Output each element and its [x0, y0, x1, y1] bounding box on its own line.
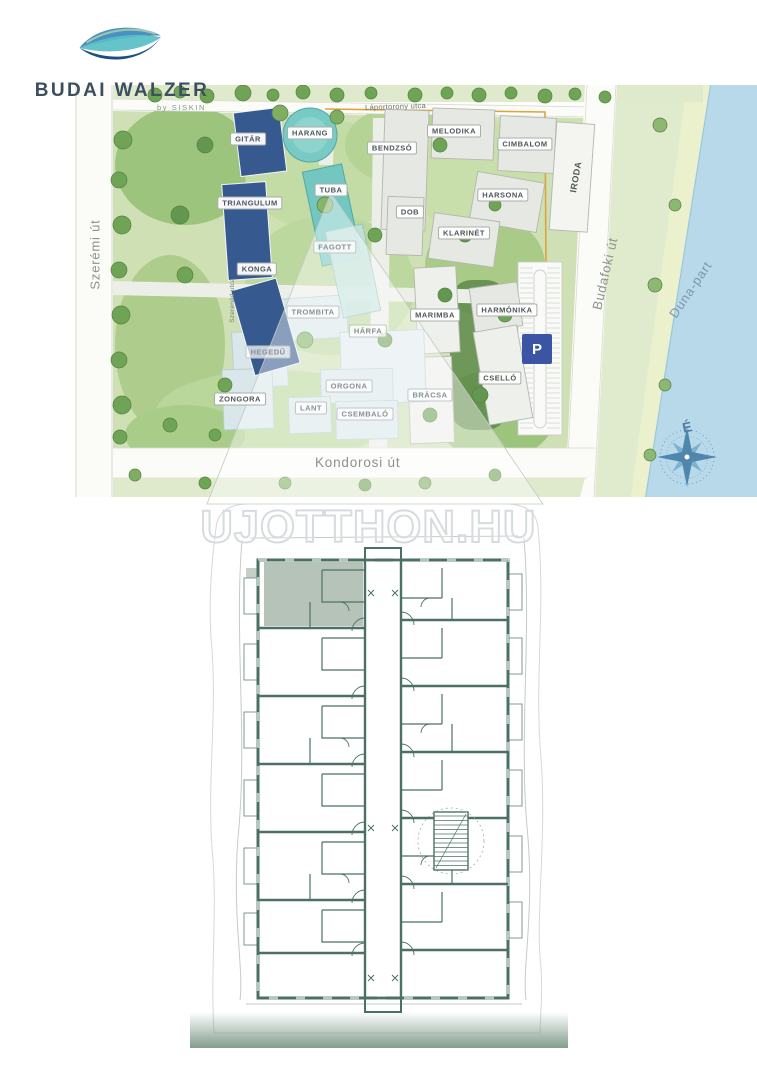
building-label-harmonika: HARMÓNIKA: [476, 304, 537, 317]
building-label-hegedu: HEGEDŰ: [245, 346, 290, 359]
street-label-szeremi-ut: Szerémi út: [88, 219, 103, 289]
parking-badge: P: [522, 334, 552, 364]
building-label-bracsa: BRÁCSA: [407, 389, 452, 402]
card-bottom-shadow: [190, 1012, 568, 1048]
floor-plan: [190, 498, 568, 1048]
building-label-dob: DOB: [396, 206, 424, 219]
building-label-tuba: TUBA: [315, 184, 348, 197]
building-label-harang: HARANG: [287, 127, 333, 140]
brand-logo-mark: [62, 16, 182, 78]
building-label-klarinet: KLARINÉT: [438, 227, 490, 240]
building-label-bendzso: BENDZSÓ: [367, 142, 417, 155]
street-label-kondorosi-ut: Kondorosi út: [315, 455, 400, 470]
brand-byline: by SISKIN: [34, 103, 210, 112]
brand-title: BUDAI WALZER: [34, 80, 210, 102]
page: BUDAI WALZER by SISKIN: [0, 0, 757, 1080]
building-label-harsona: HARSONA: [477, 189, 528, 202]
building-label-csembalo: CSEMBALÓ: [337, 408, 394, 421]
building-label-trombita: TROMBITA: [286, 306, 339, 319]
building-label-lant: LANT: [295, 402, 327, 415]
building-label-zongora: ZONGORA: [214, 393, 266, 406]
building-label-gitar: GITÁR: [230, 133, 266, 146]
building-label-melodika: MELODIKA: [427, 125, 481, 138]
brand-block: BUDAI WALZER by SISKIN: [34, 16, 210, 112]
building-label-csello: CSELLÓ: [478, 372, 521, 385]
building-label-triangulum: TRIANGULUM: [217, 197, 282, 210]
building-label-marimba: MARIMBA: [410, 309, 460, 322]
building-label-fagott: FAGOTT: [313, 241, 356, 254]
street-label-szerenad: Szerenád utca: [229, 278, 236, 323]
building-label-harfa: HÁRFA: [349, 325, 387, 338]
watermark: UJOTTHON.HU: [200, 501, 536, 553]
building-label-cimbalom: CIMBALOM: [497, 138, 552, 151]
building-label-orgona: ORGONA: [326, 380, 373, 393]
shaded-unit: [264, 562, 363, 626]
building-label-konga: KONGA: [237, 263, 277, 276]
